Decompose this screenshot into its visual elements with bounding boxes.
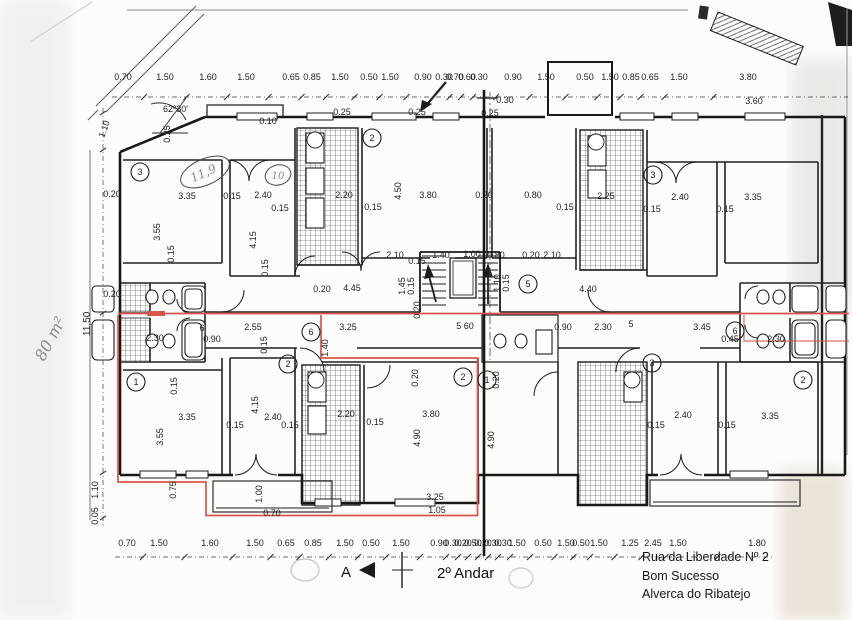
dimension-label: 1.10 <box>96 119 111 139</box>
room-number: 3 <box>649 358 654 368</box>
dimension-label: 0.15 <box>406 277 416 295</box>
dimension-label: 1.10 <box>90 481 100 499</box>
dimension-label: 0.85 <box>622 72 640 82</box>
room-number: 3 <box>650 170 655 180</box>
outer-walls <box>120 62 845 505</box>
dimension-label: 1.50 <box>537 72 555 82</box>
dimension-label: 5 <box>628 319 633 329</box>
windows <box>140 113 785 506</box>
dimension-label: 1.40 <box>432 250 450 260</box>
dimension-label: 0.70 <box>118 538 136 548</box>
dimension-label: 0.30 <box>470 72 488 82</box>
stairwell <box>420 82 558 362</box>
dimension-label: 5 60 <box>456 321 474 331</box>
room-number: 2 <box>800 375 805 385</box>
dimension-label: 0.20 <box>313 284 331 294</box>
dimension-label: 0.65 <box>282 72 300 82</box>
dimension-label: 3.25 <box>426 492 444 502</box>
dimension-label: 2.30 <box>767 334 785 344</box>
dimension-label: 0.25 <box>408 107 426 117</box>
dimension-label: 3.60 <box>745 96 763 106</box>
oval-note-right: 10 <box>272 171 285 182</box>
dimension-label: 0.80 <box>487 250 505 260</box>
dimension-label: 3.55 <box>152 223 162 241</box>
section-marker-arrow-icon <box>359 562 375 578</box>
dimension-label: 0.90 <box>554 322 572 332</box>
dimension-label: 3.35 <box>761 411 779 421</box>
dimension-label: 2.30 <box>594 322 612 332</box>
room-number: 1 <box>133 377 138 387</box>
dimension-label: 2.40 <box>264 412 282 422</box>
dimension-label: 3.80 <box>739 72 757 82</box>
address-line-2: Bom Sucesso <box>642 569 719 583</box>
left-height-dim: 11,50 <box>82 311 93 336</box>
dimension-label: 0.15 <box>501 274 511 292</box>
room-number: 2 <box>460 372 465 382</box>
dimension-label: 0.15 <box>408 256 426 266</box>
dimension-label: 1.50 <box>601 72 619 82</box>
dimension-label: 0.15 <box>281 420 299 430</box>
boundary-lines <box>88 6 204 120</box>
dimension-label: 1.40 <box>320 339 330 357</box>
dimension-label: 0.20 <box>103 189 121 199</box>
dimension-label: 3.25 <box>339 322 357 332</box>
dimension-label: 1.50 <box>336 538 354 548</box>
section-marker-letter: A <box>341 564 351 581</box>
dimension-tick <box>527 94 533 100</box>
dimension-label: 0.15 <box>716 204 734 214</box>
dimension-label: 0.20 <box>410 369 420 387</box>
floor-plan-drawing: 80 m² 11,50 62º30' 11,9 10 0.701.501.601… <box>0 0 852 620</box>
room-number: 5 <box>525 279 530 289</box>
dimension-label: 2.45 <box>644 538 662 548</box>
angle-note: 62º30' <box>163 104 188 114</box>
dimension-label: 0.50 <box>572 538 590 548</box>
dimension-label: 0.20 <box>522 250 540 260</box>
dimension-label: 3.80 <box>422 409 440 419</box>
dimension-label: 2.30 <box>146 333 164 343</box>
dimension-label: 0.15 <box>647 420 665 430</box>
dimension-label: 1.00 <box>254 485 264 503</box>
door-arcs <box>177 160 758 475</box>
room-number: 2 <box>285 359 290 369</box>
dimension-label: 0.80 <box>524 190 542 200</box>
dimension-label: 0.20 <box>475 190 493 200</box>
dimension-label: 0.90 <box>203 334 221 344</box>
dimension-label: 1.50 <box>237 72 255 82</box>
dimension-label: 1.50 <box>331 72 349 82</box>
dimension-label: 0.30 <box>496 95 514 105</box>
room-number: 3 <box>137 167 142 177</box>
room-number: 6 <box>308 327 313 337</box>
dimension-label: 0.25 <box>481 108 499 118</box>
dimension-label: 0.65 <box>277 538 295 548</box>
dimension-label: 1.50 <box>381 72 399 82</box>
dimension-label: 1.50 <box>508 538 526 548</box>
dimension-label: 0.50 <box>534 538 552 548</box>
dimension-label: 0.15 <box>718 420 736 430</box>
dimension-label: 2.40 <box>254 190 272 200</box>
dimension-label: 0.90 <box>414 72 432 82</box>
dimension-label: 1.60 <box>199 72 217 82</box>
elevator-shaft <box>450 258 476 298</box>
dimension-label: 4.90 <box>412 429 422 447</box>
dimension-tick <box>299 94 305 100</box>
dimension-label: 0.10 <box>259 116 277 126</box>
dimension-tick <box>182 554 188 560</box>
dimension-label: 1.05 <box>428 505 446 515</box>
dimension-label: 0.25 <box>333 107 351 117</box>
room-number: 6 <box>732 326 737 336</box>
floor-plan-sheet: 80 m² 11,50 62º30' 11,9 10 0.701.501.601… <box>0 0 852 620</box>
dimension-label: 0.15 <box>364 202 382 212</box>
dimension-label: 4.90 <box>486 431 496 449</box>
sink <box>163 290 175 304</box>
dimension-label: 1.50 <box>156 72 174 82</box>
dimension-label: 0.50 <box>576 72 594 82</box>
dimension-label: 0.90 <box>504 72 522 82</box>
dimension-label: 2.20 <box>335 190 353 200</box>
dimension-label: 1.50 <box>392 538 410 548</box>
dimension-tick <box>431 94 437 100</box>
dimension-label: 3.35 <box>178 412 196 422</box>
dimension-label: 6 <box>199 323 204 333</box>
room-number: 1 <box>484 375 489 385</box>
dimension-label: 0.05 <box>90 507 100 525</box>
dimension-label: 0.20 <box>412 301 422 319</box>
address-line-3: Alverca do Ribatejo <box>642 587 750 601</box>
dimension-label: 0.50 <box>360 72 378 82</box>
roof-diagonal-strip <box>711 12 804 65</box>
dimension-label: 3.35 <box>744 192 762 202</box>
dimension-label: 1.00 <box>463 249 481 259</box>
dimension-label: 2.25 <box>597 191 615 201</box>
dimension-label: 4.45 <box>343 283 361 293</box>
dimension-label: 2.20 <box>337 409 355 419</box>
dimension-label: 1.50 <box>590 538 608 548</box>
dimension-label: 0.15 <box>556 202 574 212</box>
dimension-label: 1.50 <box>150 538 168 548</box>
dimension-label: 0.15 <box>259 336 269 354</box>
address-line-1: Rua da Liberdade Nº 2 <box>642 550 769 564</box>
dimension-label: 1.60 <box>201 538 219 548</box>
dimension-label: 0.20 <box>103 289 121 299</box>
bathtub <box>792 286 818 312</box>
dimension-label: 0.85 <box>304 538 322 548</box>
dimension-label: 3.55 <box>155 428 165 446</box>
dimension-label: 3.45 <box>693 322 711 332</box>
dimension-label: 0.15 <box>223 191 241 201</box>
dimension-label: 1.50 <box>246 538 264 548</box>
dimension-label: 4.15 <box>248 231 258 249</box>
dimension-label: 0.70 <box>263 508 281 518</box>
dimension-tick <box>141 94 147 100</box>
dimension-label: 2.40 <box>674 410 692 420</box>
dimension-tick <box>230 554 236 560</box>
dimension-label: 1.50 <box>669 538 687 548</box>
dimension-tick <box>612 554 618 560</box>
toilet <box>146 290 158 304</box>
dimension-label: 0.15 <box>260 259 270 277</box>
dimension-tick <box>552 554 558 560</box>
dimension-label: 0.50 <box>362 538 380 548</box>
room-number: 2 <box>369 133 374 143</box>
dimension-label: 4.50 <box>393 182 403 200</box>
dimension-label: 2.10 <box>386 250 404 260</box>
dimension-label: 3.80 <box>419 190 437 200</box>
dimension-label: 0.25 <box>162 125 172 143</box>
dimension-label: 4.15 <box>250 396 260 414</box>
floor-title: 2º Andar <box>437 565 494 582</box>
dimension-label: 2.55 <box>244 322 262 332</box>
dimension-label: 0.15 <box>366 417 384 427</box>
dimension-label: 0.15 <box>169 377 179 395</box>
dimension-label: 0.15 <box>271 203 289 213</box>
dimension-label: 0.15 <box>166 245 176 263</box>
dimension-label: 0.15 <box>643 204 661 214</box>
dimension-label: 0.15 <box>226 420 244 430</box>
dimension-label: 2.10 <box>543 250 561 260</box>
dimension-label: 0.85 <box>303 72 321 82</box>
dimension-label: 0.75 <box>168 481 178 499</box>
dimension-label: 3.35 <box>178 191 196 201</box>
dimension-label: 0.70 <box>114 72 132 82</box>
dimension-label: 1.25 <box>621 538 639 548</box>
dimension-label: 1.80 <box>748 538 766 548</box>
dimension-label: 4.40 <box>579 284 597 294</box>
dimension-label: 1.50 <box>670 72 688 82</box>
dimension-label: 0.65 <box>641 72 659 82</box>
dimension-label: 2.40 <box>671 192 689 202</box>
dimension-tick <box>563 94 569 100</box>
caption-block: A 2º Andar Rua da Liberdade Nº 2 Bom Suc… <box>341 550 769 601</box>
